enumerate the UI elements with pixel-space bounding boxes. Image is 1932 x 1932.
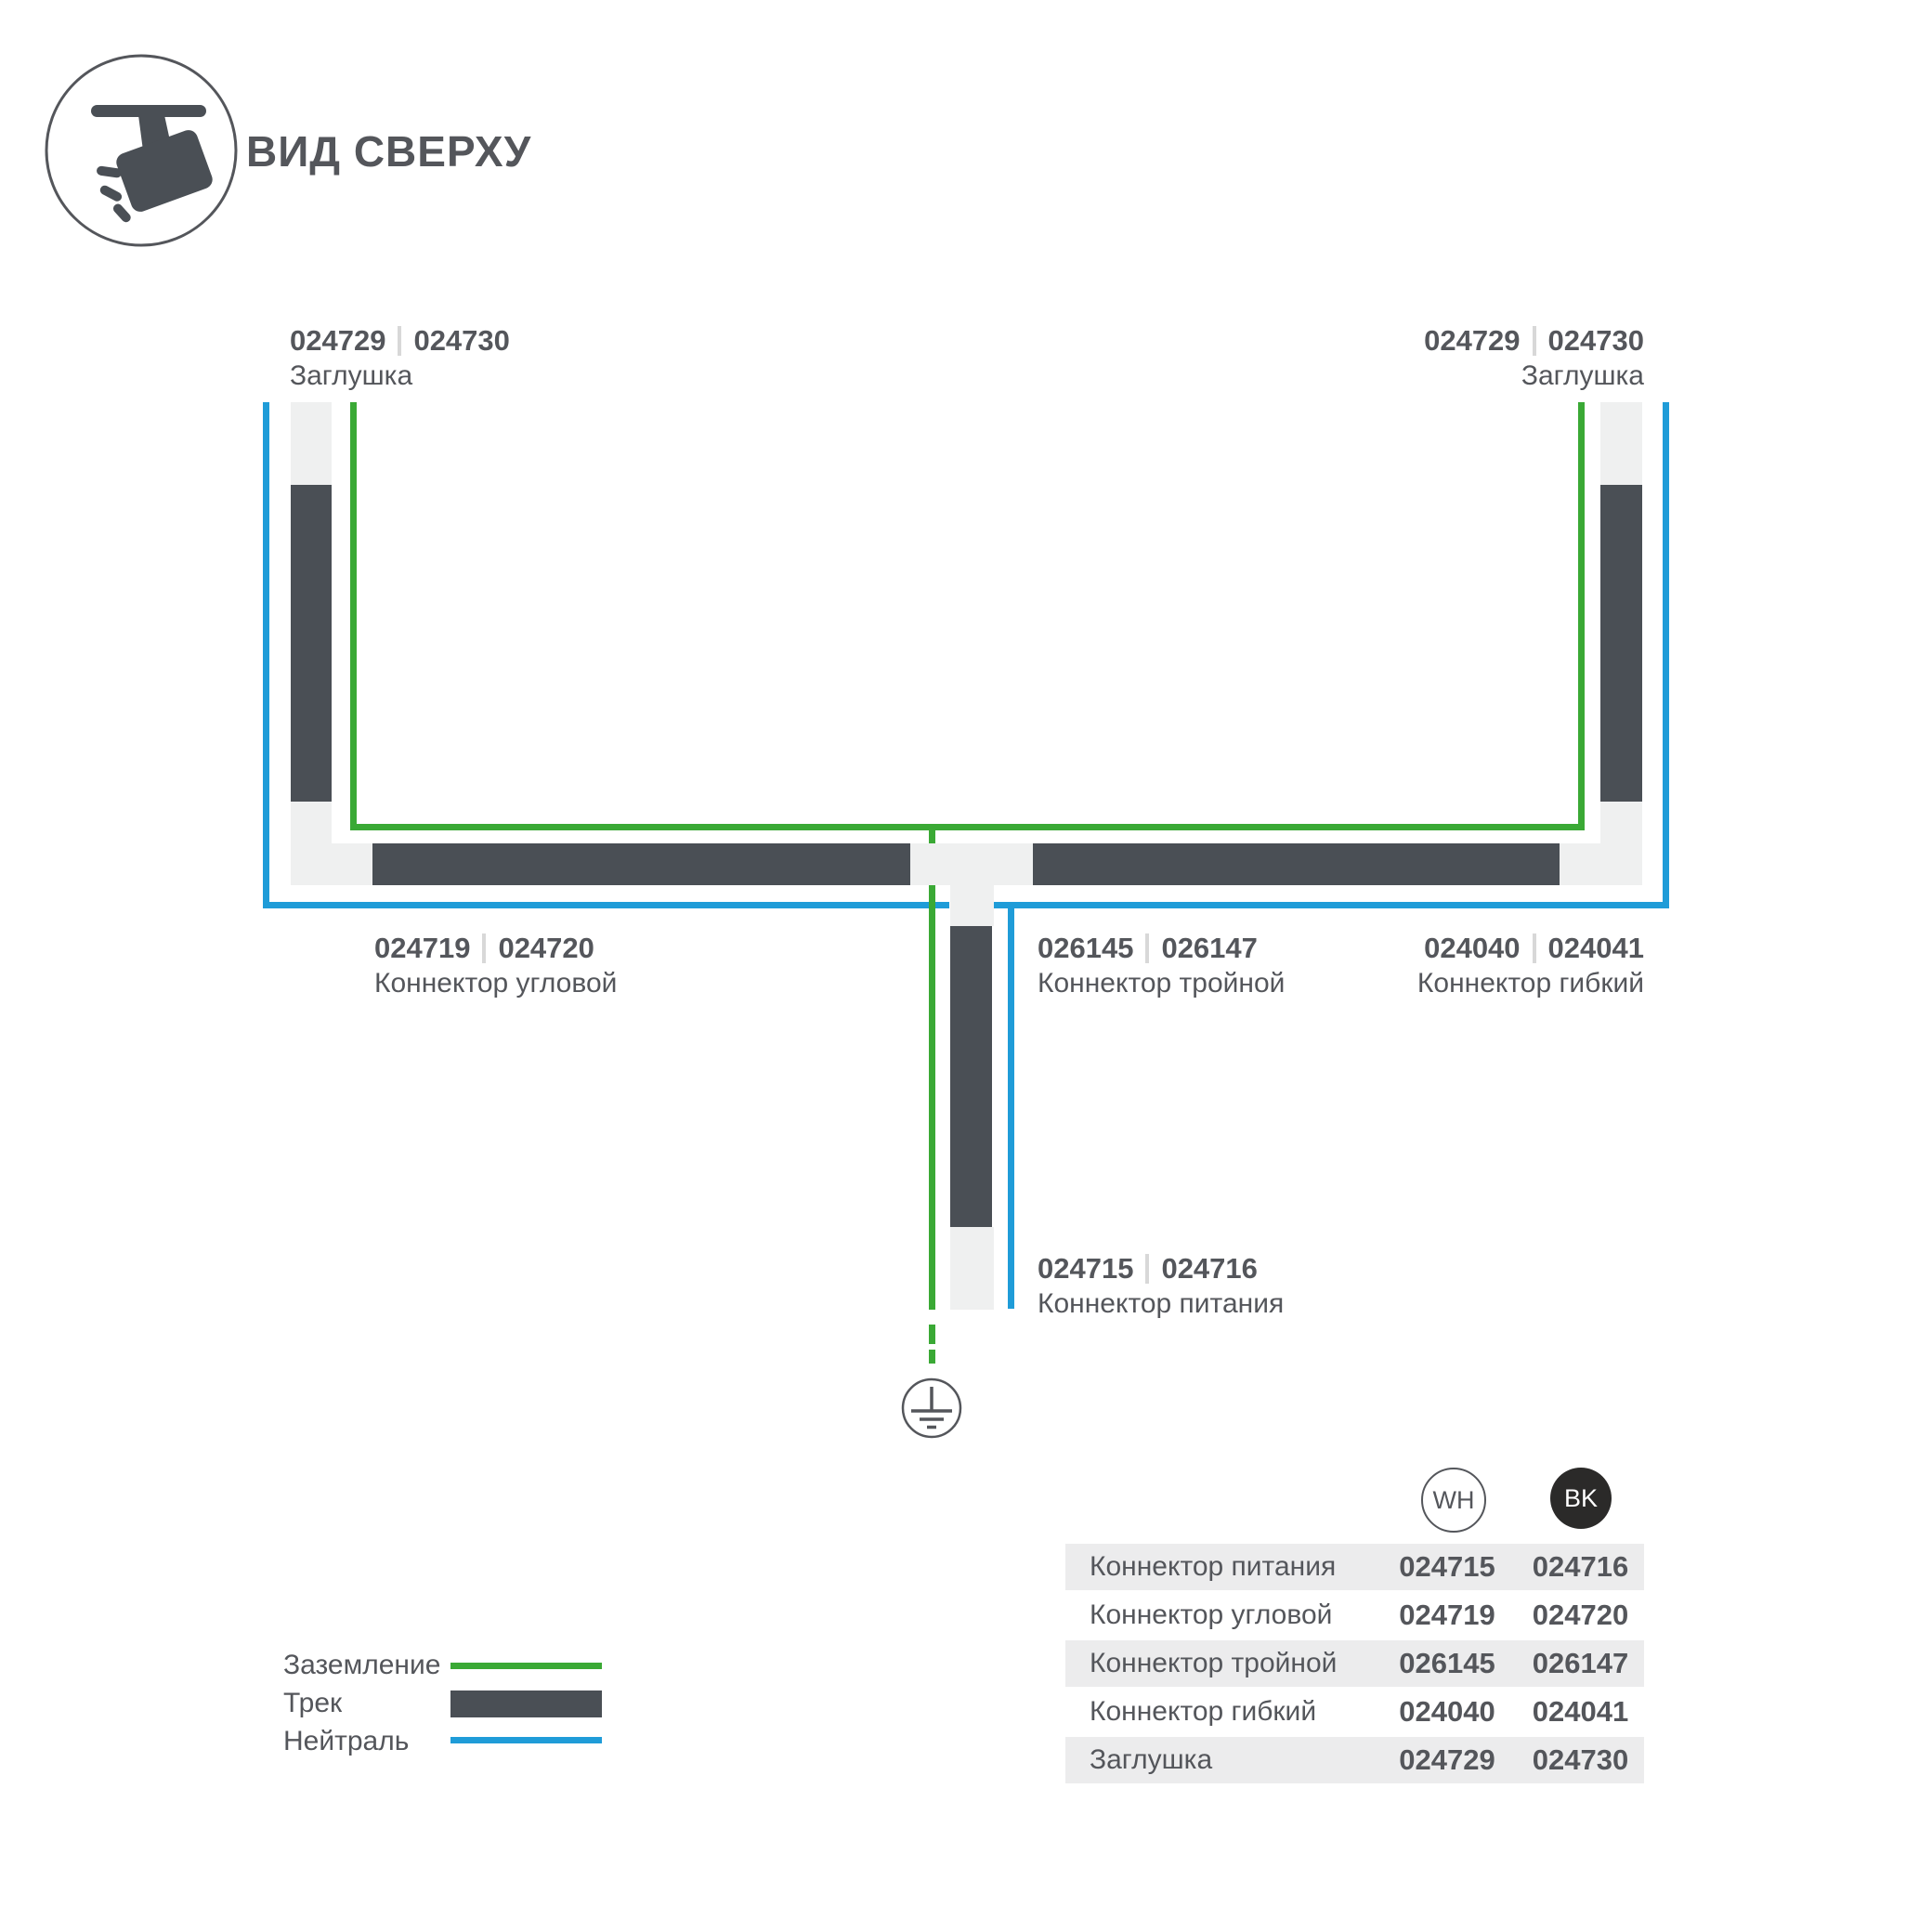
track-horizontal-left [372, 843, 910, 885]
table-row: Коннектор угловой 024719 024720 [1065, 1592, 1644, 1638]
ground-line-dash-1 [929, 1325, 935, 1344]
code-wh: 024729 [1424, 324, 1520, 358]
neutral-line-center-drop [1008, 902, 1014, 1309]
neutral-line-bottom-right [994, 902, 1669, 908]
column-badge-black: BK [1550, 1468, 1612, 1529]
end-cap-left [291, 402, 332, 485]
code-bk: 024716 [1161, 1252, 1257, 1286]
code-separator [482, 933, 486, 963]
label-triple-connector: 026145 026147 Коннектор тройной [1038, 931, 1285, 1000]
wh-code-cell: 024040 [1377, 1695, 1517, 1729]
wh-code-cell: 024719 [1377, 1599, 1517, 1632]
legend-label-track: Трек [283, 1687, 342, 1720]
neutral-line-left-vertical [263, 402, 269, 908]
code-wh: 024729 [290, 324, 385, 358]
code-bk: 024730 [1548, 324, 1644, 358]
wh-code-cell: 026145 [1377, 1647, 1517, 1680]
corner-connector-right-horizontal [1560, 843, 1642, 885]
label-end-cap-left: 024729 024730 Заглушка [290, 323, 510, 393]
code-wh: 026145 [1038, 932, 1133, 965]
ground-symbol-icon [896, 1373, 967, 1443]
page-title: ВИД СВЕРХУ [246, 126, 531, 176]
label-power-connector: 024715 024716 Коннектор питания [1038, 1251, 1284, 1321]
code-wh: 024719 [374, 932, 470, 965]
code-wh: 024040 [1424, 932, 1520, 965]
part-name: Коннектор угловой [374, 967, 617, 1000]
bk-code-cell: 026147 [1517, 1647, 1644, 1680]
code-separator [1533, 326, 1536, 356]
end-cap-right [1600, 402, 1642, 485]
triple-connector-stem [950, 885, 994, 926]
part-name-cell: Коннектор питания [1065, 1551, 1377, 1583]
legend-swatch-ground-line [450, 1663, 602, 1669]
code-wh: 024715 [1038, 1252, 1133, 1286]
legend-swatch-track-bar [450, 1690, 602, 1717]
part-name-cell: Заглушка [1065, 1744, 1377, 1776]
ground-line-left-vertical [350, 402, 357, 830]
code-bk: 024730 [413, 324, 509, 358]
table-row: Коннектор питания 024715 024716 [1065, 1544, 1644, 1590]
legend-swatch-neutral-line [450, 1737, 602, 1743]
part-name-cell: Коннектор тройной [1065, 1648, 1377, 1679]
ground-line-horizontal [350, 824, 1585, 830]
part-number-table: Коннектор питания 024715 024716 Коннекто… [1065, 1544, 1644, 1785]
legend-label-neutral: Нейтраль [283, 1725, 409, 1758]
part-name: Коннектор гибкий [1417, 967, 1644, 1000]
ground-line-right-vertical [1578, 402, 1585, 830]
track-horizontal-right [1033, 843, 1560, 885]
code-separator [398, 326, 401, 356]
code-bk: 024041 [1548, 932, 1644, 965]
track-left-vertical [291, 485, 332, 802]
ground-line-center-drop [929, 824, 935, 1310]
bk-code-cell: 024730 [1517, 1743, 1644, 1777]
track-spotlight-icon [43, 52, 240, 249]
triple-connector-horizontal [910, 843, 1033, 885]
legend-label-ground: Заземление [283, 1649, 440, 1682]
code-separator [1145, 1254, 1149, 1284]
label-codes: 024715 024716 [1038, 1251, 1284, 1286]
table-row: Коннектор тройной 026145 026147 [1065, 1640, 1644, 1687]
table-row: Коннектор гибкий 024040 024041 [1065, 1689, 1644, 1735]
label-codes: 026145 026147 [1038, 931, 1285, 966]
neutral-line-bottom-left [263, 902, 949, 908]
part-name: Заглушка [1424, 359, 1644, 393]
code-separator [1533, 933, 1536, 963]
page-canvas: ВИД СВЕРХУ 024729 024730 З [0, 0, 1932, 1932]
part-name: Заглушка [290, 359, 510, 393]
code-bk: 026147 [1161, 932, 1257, 965]
bk-code-cell: 024716 [1517, 1550, 1644, 1584]
corner-connector-left-vertical [291, 802, 332, 843]
label-codes: 024729 024730 [290, 323, 510, 359]
code-separator [1145, 933, 1149, 963]
track-right-vertical [1600, 485, 1642, 802]
label-codes: 024040 024041 [1417, 931, 1644, 966]
wh-code-cell: 024729 [1377, 1743, 1517, 1777]
bk-code-cell: 024041 [1517, 1695, 1644, 1729]
corner-connector-left-horizontal [291, 843, 372, 885]
track-center-vertical [950, 926, 992, 1227]
power-connector-piece [950, 1227, 994, 1310]
table-row: Заглушка 024729 024730 [1065, 1737, 1644, 1783]
neutral-line-right-vertical [1663, 402, 1669, 908]
label-codes: 024729 024730 [1424, 323, 1644, 359]
code-bk: 024720 [498, 932, 594, 965]
part-name-cell: Коннектор гибкий [1065, 1696, 1377, 1728]
label-flexible-connector: 024040 024041 Коннектор гибкий [1417, 931, 1644, 1000]
part-name: Коннектор тройной [1038, 967, 1285, 1000]
part-name: Коннектор питания [1038, 1287, 1284, 1321]
wh-code-cell: 024715 [1377, 1550, 1517, 1584]
corner-connector-right-vertical [1600, 802, 1642, 843]
part-name-cell: Коннектор угловой [1065, 1599, 1377, 1631]
bk-code-cell: 024720 [1517, 1599, 1644, 1632]
column-badge-white: WH [1421, 1468, 1486, 1533]
label-end-cap-right: 024729 024730 Заглушка [1424, 323, 1644, 393]
label-codes: 024719 024720 [374, 931, 617, 966]
label-corner-connector: 024719 024720 Коннектор угловой [374, 931, 617, 1000]
ground-line-dash-2 [929, 1350, 935, 1364]
